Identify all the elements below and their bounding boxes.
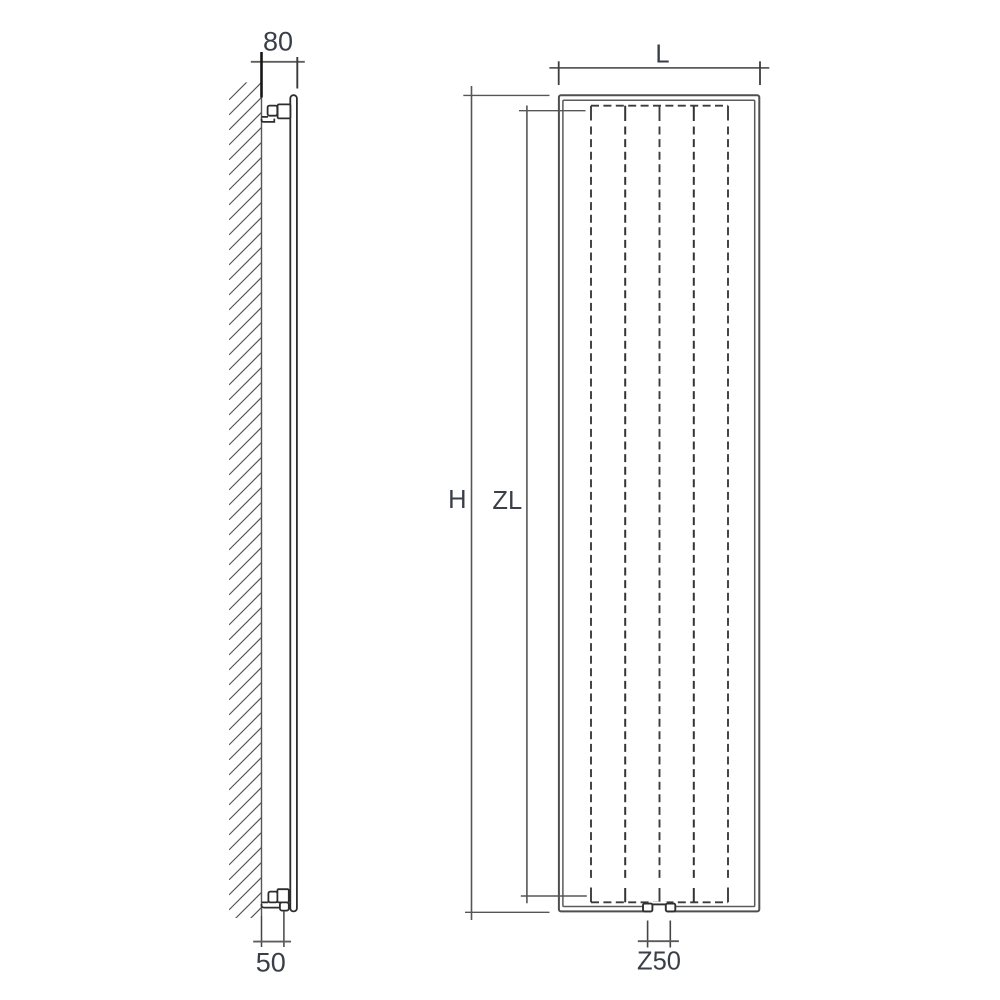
- svg-text:50: 50: [256, 948, 286, 978]
- svg-text:H: H: [448, 486, 466, 514]
- svg-text:80: 80: [263, 27, 293, 57]
- svg-text:Z50: Z50: [637, 948, 681, 976]
- svg-text:L: L: [655, 41, 669, 69]
- svg-text:ZL: ZL: [492, 487, 522, 515]
